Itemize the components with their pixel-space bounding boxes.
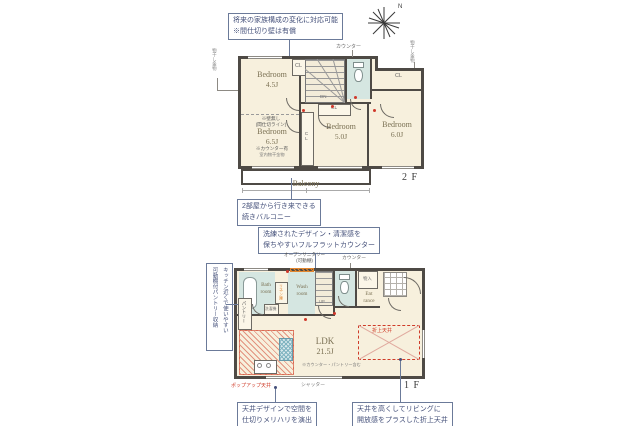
- note-line: 洗練されたデザイン・清潔感を: [263, 230, 375, 241]
- wall: [370, 59, 372, 99]
- note-line: 保ちやすいフルフラットカウンター: [263, 241, 375, 252]
- room-bedroom-45: Bedroom 4.5J: [246, 70, 298, 89]
- note-pantry: キッチン近くで使いやすい 可動棚付パントリー収納: [206, 263, 233, 351]
- room-name: Bedroom: [372, 120, 422, 130]
- window: [422, 330, 425, 358]
- wall: [333, 271, 335, 316]
- compass-icon: [366, 6, 402, 40]
- fire-alarm-marker: [331, 105, 334, 108]
- note-raised-ceiling: 天井を高くしてリビングに 開放感をプラスした折上天井: [352, 402, 453, 426]
- note-line: 開放感をプラスした折上天井: [357, 416, 448, 426]
- leader-line: [217, 78, 218, 90]
- note-ceiling-zoning: 天井デザインで空間を 仕切りメリハリを演出: [237, 402, 317, 426]
- washer-label: 洗濯機: [265, 307, 276, 312]
- note-line: 続きバルコニー: [242, 213, 316, 224]
- window: [382, 166, 414, 169]
- note-line: 将来の家族構成の変化に対応可能: [233, 16, 338, 27]
- room-size: 4.5J: [246, 80, 298, 89]
- closet-label: CL: [395, 73, 402, 79]
- partition-line: [241, 114, 299, 115]
- room-size: 5.0J: [316, 132, 366, 141]
- note-line: 仕切りメリハリを演出: [242, 416, 312, 426]
- kitchen-sink-counter: [279, 338, 293, 361]
- counter-label-2f: カウンター: [336, 44, 361, 51]
- leader-line: [414, 62, 415, 68]
- shutter-label: シャッター: [301, 383, 325, 389]
- counter-label-1f: カウンター: [342, 256, 366, 262]
- floor-plan-page: 将来の家族構成の変化に対応可能 ※間仕切り壁は有償 N Bedroom 4.5J…: [0, 0, 640, 426]
- popup-ceiling-label: ポップアップ天井: [231, 382, 271, 389]
- leader-line: [275, 389, 276, 402]
- stove-burner-icon: [266, 363, 271, 368]
- room-size: 6.5J: [246, 137, 298, 146]
- wash-room-label: Wash room: [291, 284, 313, 297]
- leader-line: [400, 361, 401, 402]
- fire-alarm-marker: [302, 109, 305, 112]
- wall: [367, 104, 369, 166]
- leader-line: [226, 304, 238, 305]
- compass-north-label: N: [398, 4, 402, 10]
- note-line: 天井を高くしてリビングに: [357, 405, 448, 416]
- stairs-dn-label: DN: [320, 94, 327, 99]
- window: [266, 376, 342, 379]
- window: [248, 56, 282, 59]
- laundry-hardware-label-right: 物干し金物: [410, 40, 415, 63]
- entrance-label: Ent rance: [358, 291, 380, 304]
- note-line: 天井デザインで空間を: [242, 405, 312, 416]
- closet-label: CL: [295, 63, 302, 69]
- dimension-tick: [242, 188, 243, 193]
- toilet-tank: [339, 274, 350, 280]
- room-note: 室内物干金物: [246, 152, 298, 157]
- bath-room-label: Bath room: [255, 282, 277, 295]
- room-name: LDK: [300, 336, 350, 347]
- dimension-tick: [306, 188, 307, 193]
- stairs-up-label: UP: [319, 299, 325, 304]
- room-bedroom-60: Bedroom 6.0J: [372, 120, 422, 139]
- floor-label-1f: 1 F: [404, 380, 420, 391]
- window: [244, 268, 268, 271]
- note-line: キッチン近くで使いやすい: [219, 267, 229, 347]
- toilet-icon: [354, 69, 363, 82]
- pantry-label: パントリー: [241, 301, 247, 323]
- room-bedroom-65: Bedroom 6.5J ※カウンター有 室内物干金物: [246, 127, 298, 157]
- plan-2f-right: [378, 68, 424, 169]
- note-flat-counter: 洗練されたデザイン・清潔感を 保ちやすいフルフラットカウンター: [258, 227, 380, 254]
- closet-label: CL: [304, 132, 309, 142]
- fire-alarm-marker: [286, 270, 289, 273]
- open-sanitary-label: オープンサニタリー (可動棚): [284, 252, 325, 264]
- wall: [335, 306, 380, 308]
- floor-label-2f: 2 F: [402, 172, 418, 183]
- toilet-icon: [340, 281, 349, 294]
- room-name: rance: [358, 298, 380, 305]
- ldk-note: ※カウンター・パントリー含む: [302, 362, 361, 367]
- toilet-tank: [353, 62, 364, 68]
- leader-line: [291, 178, 292, 199]
- room-ldk: LDK 21.5J: [300, 336, 350, 357]
- raised-ceiling-label: 折上天井: [372, 327, 392, 334]
- room-name: room: [255, 289, 277, 296]
- note-future-layout: 将来の家族構成の変化に対応可能 ※間仕切り壁は有償: [228, 13, 343, 40]
- note-line: 2部屋から行き来できる: [242, 202, 316, 213]
- room-size: 6.0J: [372, 130, 422, 139]
- wall: [375, 56, 378, 71]
- room-size: 21.5J: [300, 347, 350, 357]
- room-name: room: [291, 291, 313, 298]
- note-line: 可動棚付パントリー収納: [209, 267, 219, 347]
- room-name: Bedroom: [246, 70, 298, 80]
- open-shelf-marker: [290, 268, 314, 272]
- room-name: Balcony: [293, 179, 320, 188]
- linen-label: リネン庫: [278, 284, 284, 300]
- leader-line: [217, 90, 238, 91]
- wall: [369, 89, 422, 91]
- fire-alarm-marker: [373, 109, 376, 112]
- stove-burner-icon: [257, 363, 262, 368]
- fire-alarm-marker: [354, 96, 357, 99]
- note-balcony: 2部屋から行き来できる 続きバルコニー: [237, 199, 321, 226]
- laundry-hardware-label-left: 物干し金物: [212, 48, 217, 71]
- fire-alarm-marker: [333, 312, 336, 315]
- dimension-tick: [369, 188, 370, 193]
- storage-label: 物入: [363, 276, 372, 281]
- note-line: (可動棚): [284, 258, 325, 264]
- note-line: ※間仕切り壁は有償: [233, 27, 338, 38]
- fire-alarm-marker: [304, 318, 307, 321]
- leader-line: [352, 50, 353, 57]
- wall: [355, 271, 357, 308]
